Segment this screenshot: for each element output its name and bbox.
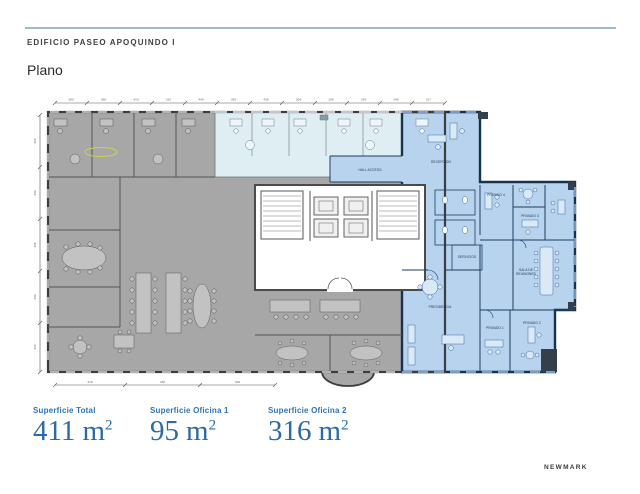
stat-value: 316m2 [268,417,349,446]
dim-label: 360 [101,98,106,102]
label-sala-reuniones-2: REUNIONES [516,272,536,276]
dim-label: 415 [87,380,92,384]
label-privado-4: PRIVADO 4 [487,193,505,197]
label-privado-2: PRIVADO 2 [523,321,541,325]
building-core [255,185,425,292]
stat-superficie-oficina-1: Superficie Oficina 1 95m2 [150,406,229,446]
dim-label: 300 [235,380,240,384]
entrance-bay [322,372,374,386]
dim-label: 304 [296,98,301,102]
label-servicios: SERVICIOS [458,255,476,259]
dim-label: 380 [68,98,73,102]
floor-plan: RECEPCION HALL ACCESO PRIVADO 4 PRIVADO … [30,95,590,395]
dim-label: 320 [33,138,37,143]
dim-label: 348 [393,98,398,102]
dim-label: 438 [263,98,268,102]
dim-label: 410 [133,98,138,102]
label-presidencia: PRESIDENCIA [429,305,452,309]
dim-label: 330 [33,294,37,299]
stat-label: Superficie Oficina 2 [268,406,349,415]
page-title: Plano [27,62,63,78]
dim-label: 334 [361,98,366,102]
dim-label: 280 [328,98,333,102]
label-privado-3: PRIVADO 3 [521,214,539,218]
stat-label: Superficie Oficina 1 [150,406,229,415]
header-rule [25,27,616,29]
stat-superficie-total: Superficie Total 411m2 [33,406,113,446]
dim-label: 440 [198,98,203,102]
dim-label: 330 [33,190,37,195]
dim-label: 310 [166,98,171,102]
dim-label: 317 [426,98,431,102]
dim-label: 320 [33,344,37,349]
dim-label: 365 [231,98,236,102]
stat-value: 411m2 [33,417,113,446]
dim-label: 345 [33,242,37,247]
label-privado-1: PRIVADO 1 [486,326,504,330]
building-title: EDIFICIO PASEO APOQUINDO I [27,38,176,47]
label-recepcion: RECEPCION [431,160,451,164]
entrance-gap [327,284,353,292]
dim-label: 330 [160,380,165,384]
stat-superficie-oficina-2: Superficie Oficina 2 316m2 [268,406,349,446]
floor-plan-svg: RECEPCION HALL ACCESO PRIVADO 4 PRIVADO … [30,95,590,395]
brand-logo: NEWMARK [544,464,588,471]
stat-value: 95m2 [150,417,229,446]
stat-label: Superficie Total [33,406,113,415]
label-hall-acceso: HALL ACCESO [358,168,382,172]
